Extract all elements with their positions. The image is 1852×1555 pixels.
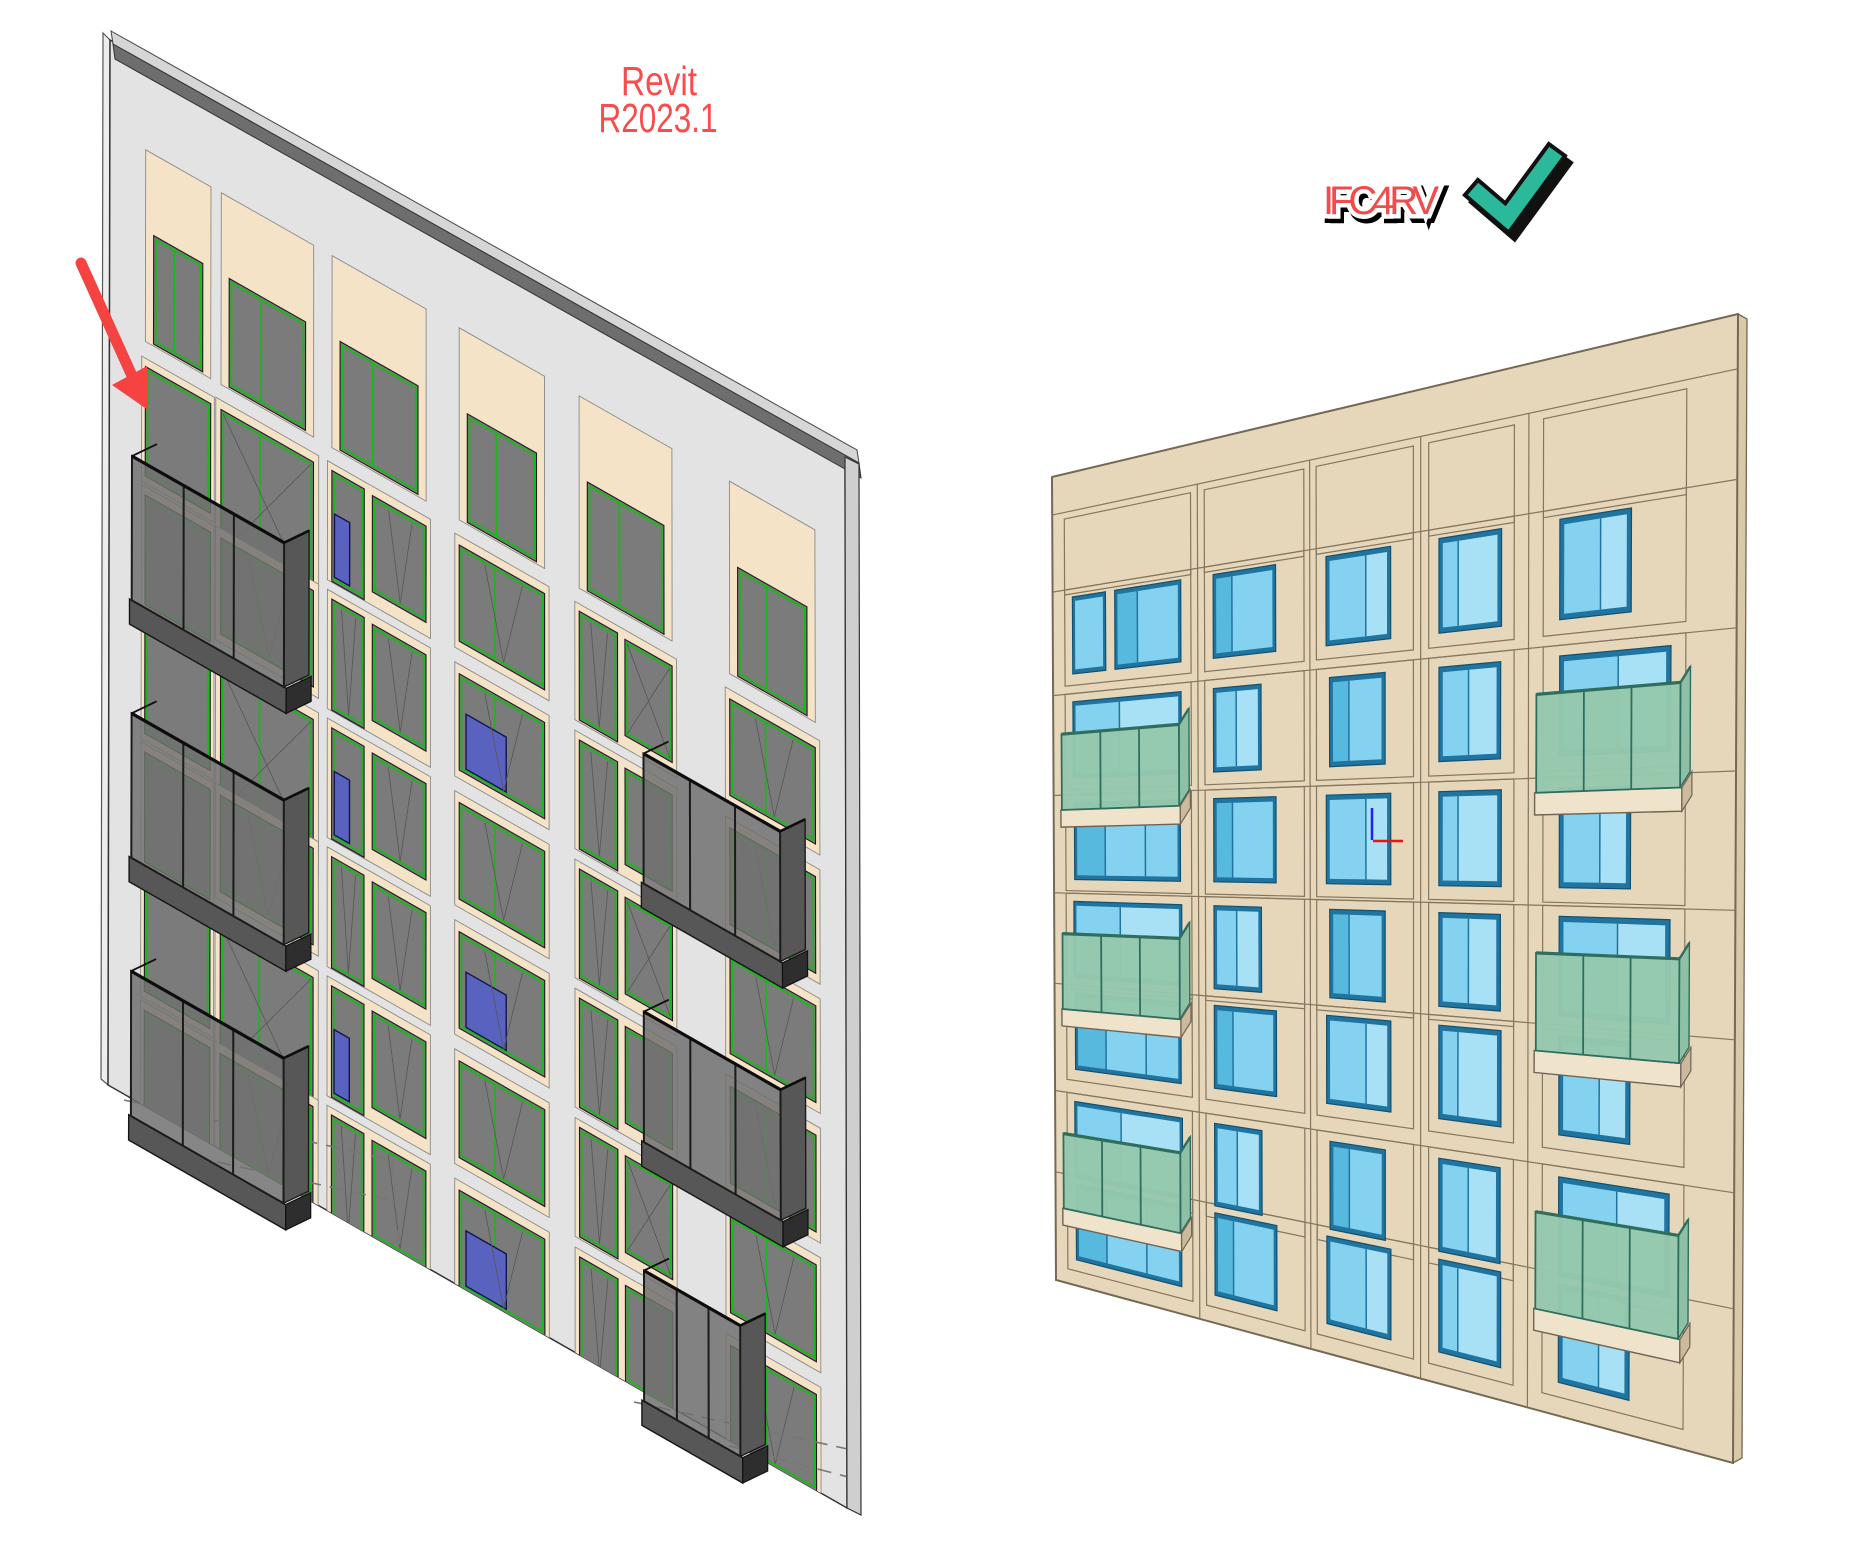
svg-text:R2023.1: R2023.1 <box>599 95 718 141</box>
svg-text:IFC4RV: IFC4RV <box>1323 179 1439 223</box>
